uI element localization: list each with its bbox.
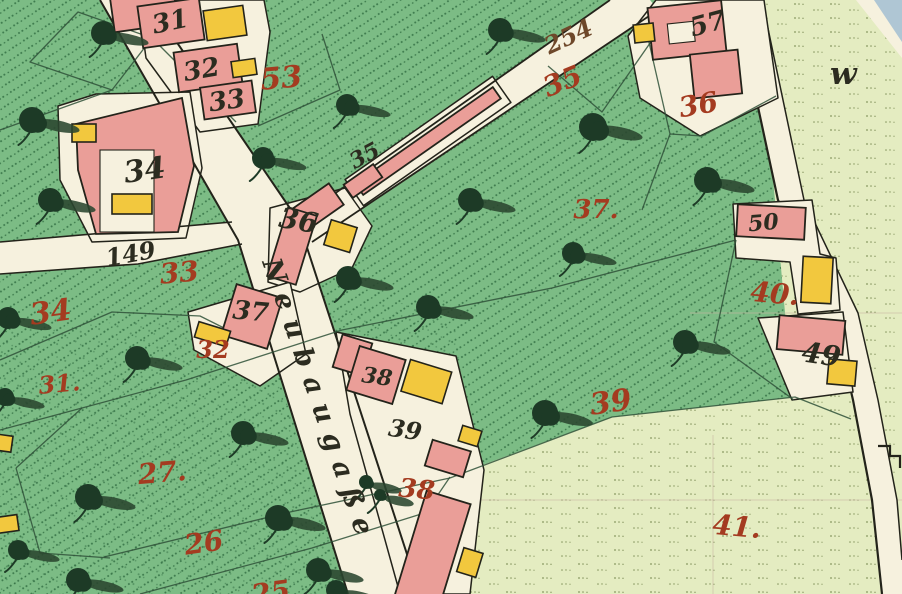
building-yellow-edge-b xyxy=(0,515,19,534)
building-yellow-edge-a xyxy=(0,434,13,452)
house-number-38: 38 xyxy=(360,362,394,392)
parcel-number-38: 38 xyxy=(397,474,436,507)
parcel-number-31: 31. xyxy=(37,367,81,400)
tree-canopy xyxy=(590,121,610,141)
parcel-number-26: 26 xyxy=(181,524,225,562)
parcel-number-39: 39 xyxy=(588,382,634,422)
tree-canopy xyxy=(100,28,117,45)
tree-canopy xyxy=(3,393,16,406)
house-number-37: 37 xyxy=(231,296,270,329)
building-yellow-34b xyxy=(112,194,152,214)
tree-canopy xyxy=(345,273,362,290)
parcel-number-34: 34 xyxy=(28,292,74,332)
tree-canopy xyxy=(47,195,64,212)
house-number-50: 50 xyxy=(747,209,780,238)
tree-canopy xyxy=(682,337,699,354)
tree-canopy xyxy=(5,313,20,328)
tree-canopy xyxy=(275,513,293,531)
house-number-32: 32 xyxy=(181,52,222,88)
tree-canopy xyxy=(425,302,442,319)
tree-canopy xyxy=(240,428,257,445)
meadow-mark-w: w xyxy=(830,56,858,92)
tree-canopy xyxy=(542,408,560,426)
tree-canopy xyxy=(16,546,30,560)
building-yellow-top xyxy=(203,5,247,40)
tree-canopy xyxy=(134,353,151,370)
parcel-number-41: 41. xyxy=(711,508,762,545)
tree-canopy xyxy=(75,575,92,592)
parcel-number-36: 36 xyxy=(676,85,720,124)
tree-canopy xyxy=(344,100,359,115)
cadastral-map: 53353637.33343231.27.2625383940.41.31323… xyxy=(0,0,902,594)
tree-canopy xyxy=(570,248,585,263)
parcel-number-53: 53 xyxy=(259,59,304,98)
tree-canopy xyxy=(467,195,484,212)
map-canvas: 53353637.33343231.27.2625383940.41.31323… xyxy=(0,0,902,594)
tree-canopy xyxy=(29,115,47,133)
house-number-49: 49 xyxy=(800,336,843,374)
house-number-39: 39 xyxy=(387,413,424,446)
building-yellow-57 xyxy=(633,23,655,43)
parcel-number-27: 27. xyxy=(135,454,187,491)
house-number-33: 33 xyxy=(207,84,247,119)
tree-canopy xyxy=(260,153,275,168)
building-yellow-small-top xyxy=(231,58,257,77)
parcel-number-40: 40. xyxy=(749,275,800,312)
tree-canopy xyxy=(379,492,387,500)
tree-canopy xyxy=(497,25,514,42)
building-yellow-40 xyxy=(801,256,833,304)
tree-canopy xyxy=(85,492,103,510)
house-number-34: 34 xyxy=(122,150,168,190)
tree-canopy xyxy=(704,175,722,193)
parcel-number-32: 32 xyxy=(196,335,229,364)
tree-canopy xyxy=(315,565,332,582)
parcel-number-37: 37. xyxy=(573,195,618,225)
house-number-36: 36 xyxy=(277,201,321,240)
parcel-number-33: 33 xyxy=(158,254,200,290)
